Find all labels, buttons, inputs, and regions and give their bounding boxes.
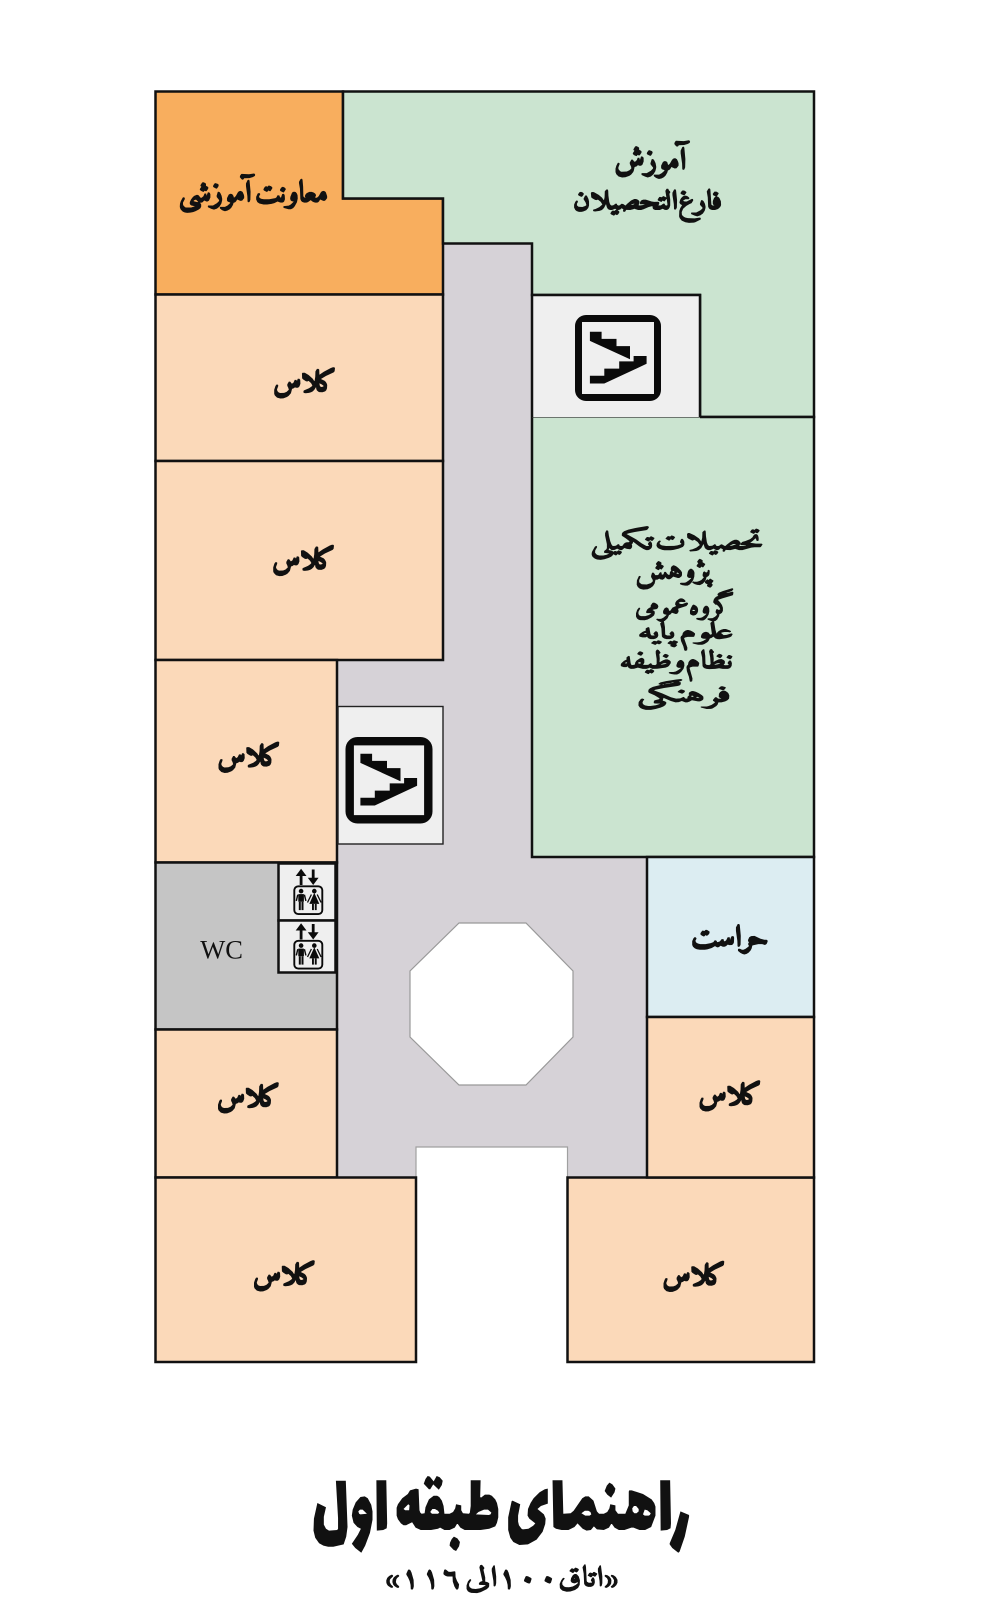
svg-text:WC: WC [200, 935, 243, 965]
